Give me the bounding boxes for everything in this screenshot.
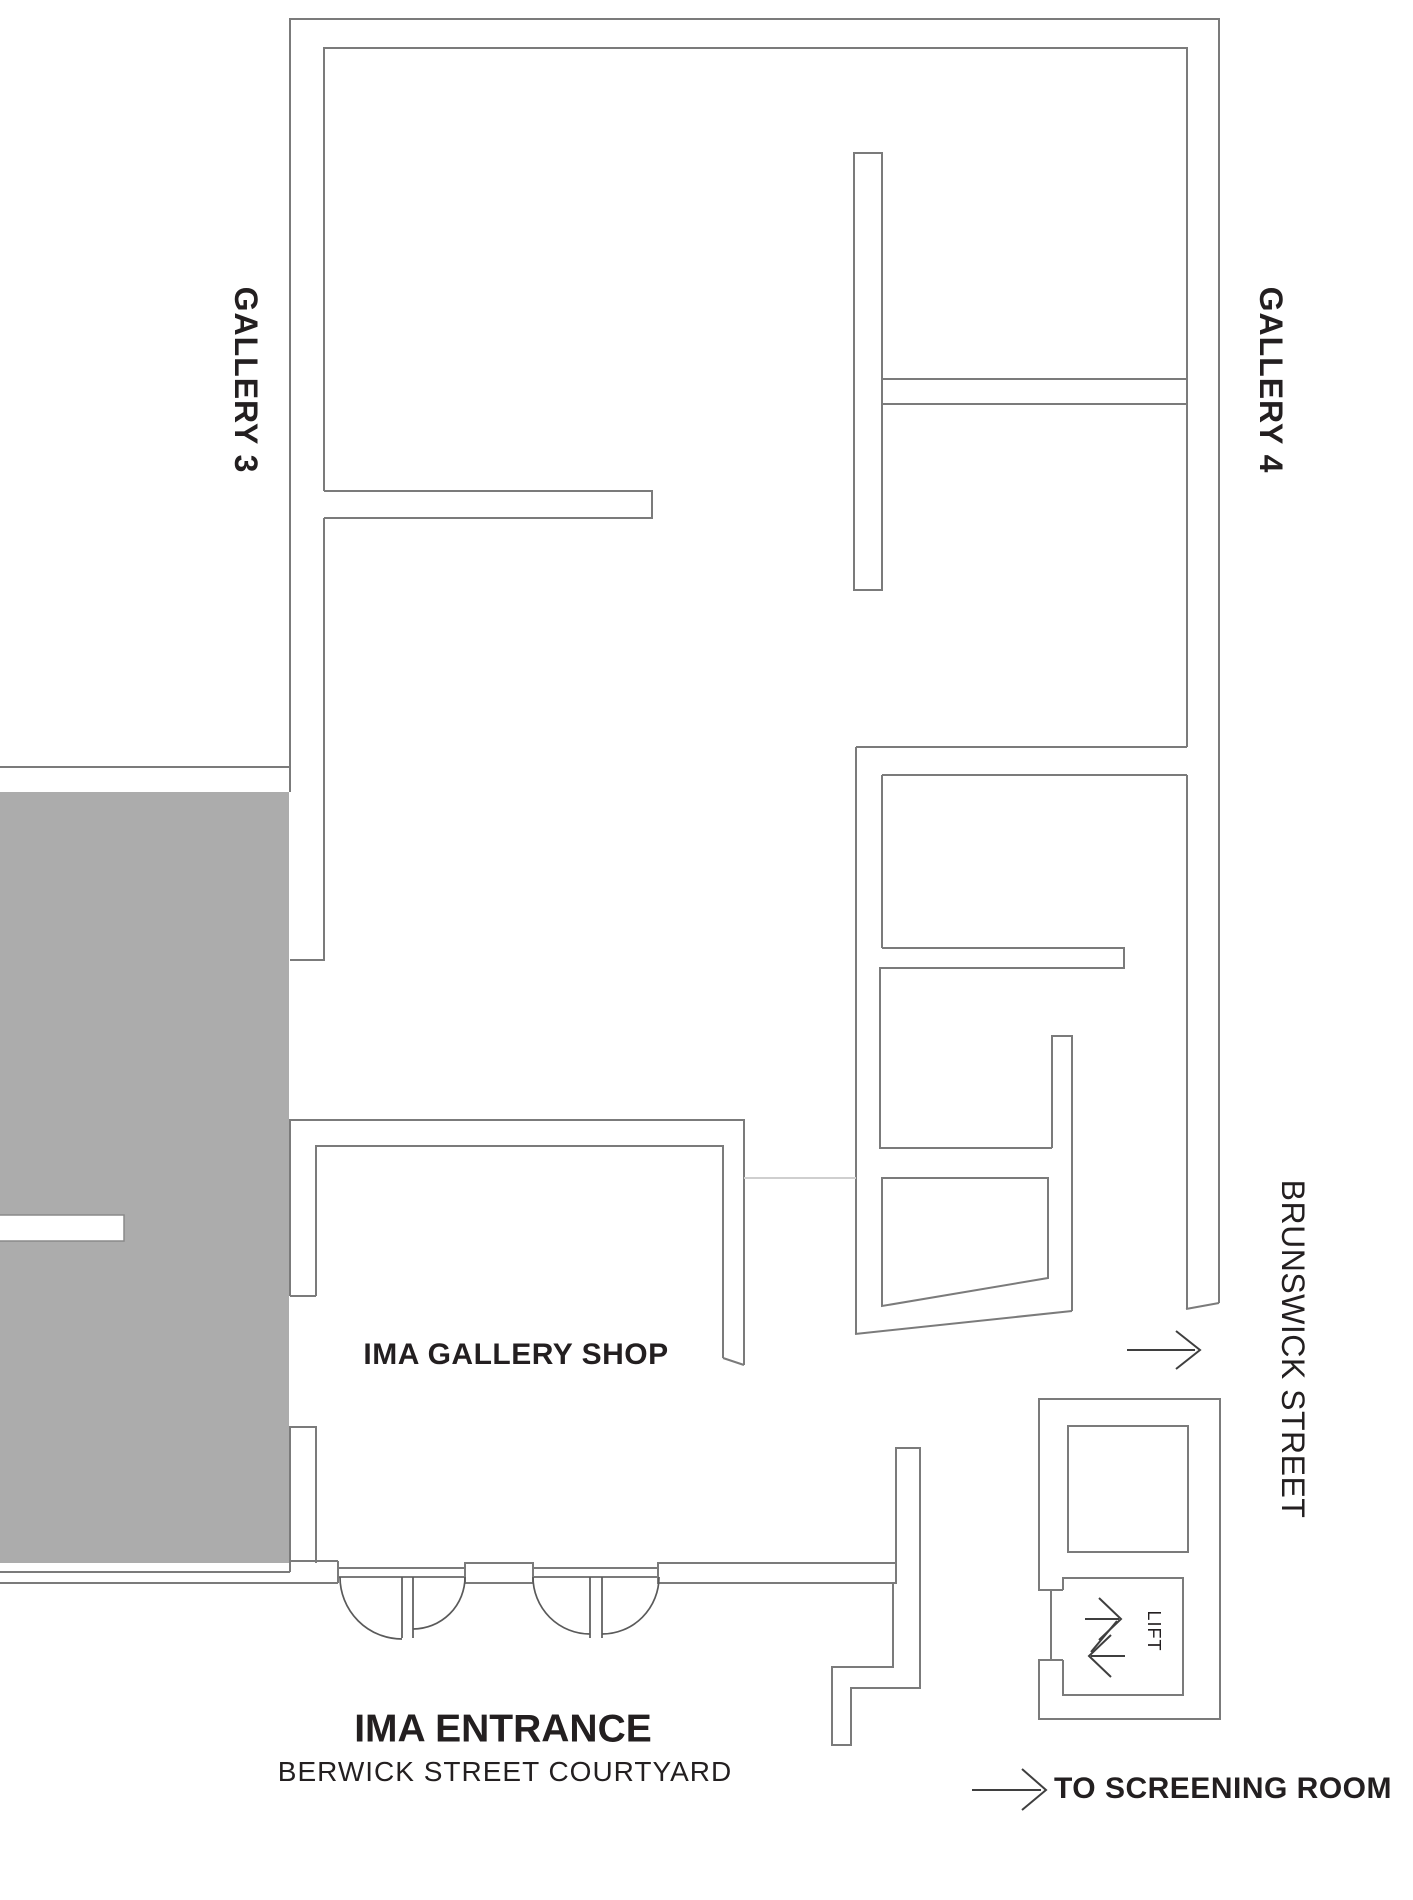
screening-arrow-icon [972, 1769, 1046, 1810]
gallery3-label: GALLERY 3 [230, 287, 262, 474]
middle-room-walls [855, 747, 1124, 1334]
divider-wall [854, 153, 882, 590]
gallery4-label: GALLERY 4 [1255, 287, 1287, 474]
solid-block-notch [0, 1215, 124, 1241]
shop-walls [290, 1120, 856, 1365]
lift-walls [1039, 1399, 1220, 1719]
solid-block-fill [0, 792, 289, 1563]
street-label: BRUNSWICK STREET [1277, 1180, 1309, 1519]
entrance-doors [340, 1577, 659, 1639]
floorplan-drawing [0, 0, 1413, 1900]
lift-label: LIFT [1145, 1610, 1163, 1651]
lift-arrows-icon [1085, 1598, 1125, 1677]
screening-label: TO SCREENING ROOM [1054, 1774, 1392, 1804]
entrance-title: IMA ENTRANCE [354, 1710, 652, 1749]
entrance-subtitle: BERWICK STREET COURTYARD [278, 1758, 732, 1786]
courtyard-wall [832, 1448, 920, 1745]
brunswick-arrow-icon [1127, 1331, 1200, 1369]
floorplan-canvas: GALLERY 3 GALLERY 4 IMA GALLERY SHOP BRU… [0, 0, 1413, 1900]
solid-block [0, 792, 289, 1563]
shop-label: IMA GALLERY SHOP [363, 1340, 668, 1370]
